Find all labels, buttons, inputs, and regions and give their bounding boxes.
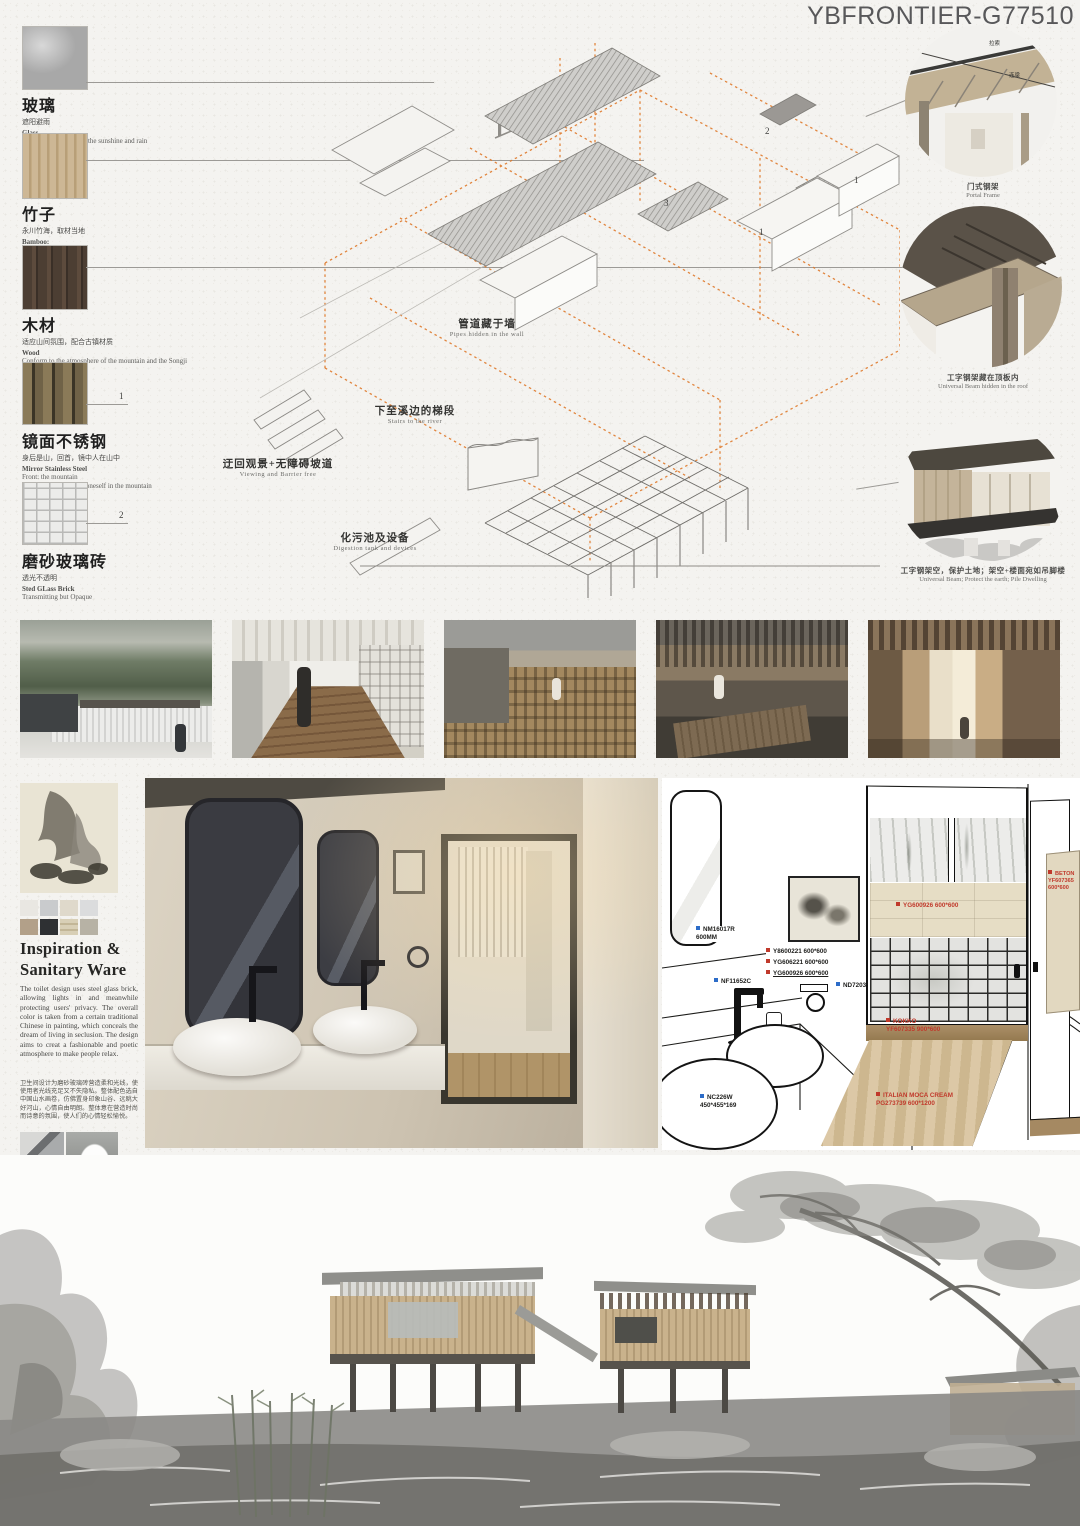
label-floor-stone: ITALIAN MOCA CREAM PG273739 600*1200 bbox=[876, 1092, 986, 1108]
roof-edge bbox=[80, 700, 200, 708]
person-figure bbox=[552, 678, 561, 700]
stilt bbox=[430, 1364, 436, 1412]
exploded-axonometric-diagram bbox=[240, 18, 900, 598]
swatch-charcoal bbox=[40, 919, 58, 935]
pergola-slats bbox=[656, 620, 848, 667]
window-glass bbox=[388, 1302, 458, 1338]
stilt bbox=[618, 1369, 624, 1413]
stilt bbox=[722, 1369, 728, 1413]
ink-mountain-art bbox=[20, 783, 118, 893]
swatch-beige bbox=[60, 900, 78, 916]
shower-door-handle bbox=[1014, 964, 1020, 978]
detail-caption-beam-in-roof: 工字钢架藏在顶板内 Universal Beam hidden in the r… bbox=[868, 372, 1080, 390]
label-beton: BETON YF607365 600*600 bbox=[1048, 870, 1074, 892]
material-swatch-mirror-steel bbox=[22, 362, 88, 425]
blue-marker-icon bbox=[696, 926, 700, 930]
annotation-cable: 拉索 bbox=[989, 39, 1000, 47]
dark-volume bbox=[444, 648, 509, 724]
person-figure bbox=[960, 717, 969, 739]
axon-label-pipes: 管道藏于墙 Pipes hidden in the wall bbox=[397, 316, 577, 338]
blue-marker-icon bbox=[836, 982, 840, 986]
blue-marker-icon bbox=[700, 1094, 704, 1098]
clerestory-band bbox=[340, 1282, 535, 1296]
swatch-lightgray bbox=[80, 900, 98, 916]
detail-caption-portal-frame: 门式钢架 Portal Frame bbox=[868, 181, 1080, 199]
inspiration-body-chinese: 卫生间设计为磨砂玻璃砖营造柔和光线，使使用者光线充足又不失隐私。整体配色选自中国… bbox=[20, 1080, 138, 1121]
tp-roll bbox=[806, 993, 825, 1012]
floor-shadow bbox=[868, 739, 1060, 758]
detail-image-pile-dwelling bbox=[898, 420, 1064, 562]
axon-marker-1b: 1 bbox=[854, 175, 859, 185]
shower-mosaic-tiles bbox=[870, 938, 1026, 1022]
red-marker-icon bbox=[896, 902, 900, 906]
material-swatch-wood bbox=[22, 245, 88, 310]
swatch-tan bbox=[20, 919, 38, 935]
color-swatch-row-2 bbox=[20, 919, 98, 935]
shower-beige-band bbox=[870, 883, 1026, 937]
portal-frame-drawing bbox=[905, 25, 1057, 177]
axon-marker-1a: 1 bbox=[759, 227, 764, 237]
tp-bracket bbox=[800, 984, 828, 992]
bathroom-interior-render bbox=[145, 778, 658, 1148]
riverside-elevation-render bbox=[0, 1155, 1080, 1526]
material-swatch-glass bbox=[22, 26, 88, 90]
door-handle bbox=[1033, 962, 1038, 972]
axon-label-stairs: 下至溪边的梯段 Stairs to the river bbox=[325, 403, 505, 425]
label-tp-code: ND7203 bbox=[836, 982, 866, 990]
material-swatch-bamboo bbox=[22, 133, 88, 199]
leader-line-brick bbox=[86, 523, 128, 524]
swatch-cream bbox=[20, 900, 38, 916]
beam-in-roof-drawing bbox=[900, 206, 1062, 368]
dark-window bbox=[615, 1317, 657, 1343]
stilt bbox=[350, 1364, 356, 1412]
person-figure bbox=[175, 724, 186, 752]
swatch-taupe bbox=[80, 919, 98, 935]
stilt bbox=[475, 1364, 481, 1412]
red-marker-icon bbox=[1048, 870, 1052, 874]
material-marker-2: 2 bbox=[119, 510, 124, 520]
annotation-beam: 连梁 bbox=[1009, 71, 1020, 79]
red-marker-icon bbox=[766, 948, 770, 952]
ink-landscape bbox=[0, 1155, 1080, 1526]
shower-jamb-left bbox=[866, 786, 868, 1036]
floor-band bbox=[330, 1354, 535, 1364]
blue-marker-icon bbox=[714, 978, 718, 982]
render-wood-corridor bbox=[868, 620, 1060, 758]
axon-label-viewing: 迂回观景+无障碍坡道 Viewing and Barrier free bbox=[188, 456, 368, 478]
shower-jamb-right bbox=[1026, 788, 1028, 1036]
render-aerial-pergola bbox=[444, 620, 636, 758]
tp-holder bbox=[798, 984, 828, 1014]
drawn-faucet-tip bbox=[757, 995, 763, 1008]
pile-dwelling-drawing bbox=[898, 420, 1064, 562]
bathroom-technical-drawing: NM16017R 600MM Y8600221 600*600 YG606221… bbox=[662, 778, 1080, 1150]
leader-line-mirror bbox=[86, 404, 128, 405]
pergola-band bbox=[600, 1293, 750, 1309]
material-swatch-glass-brick bbox=[22, 482, 88, 545]
detail-caption-pile-dwelling: 工字钢架空，保护土地；架空+楼面宛如吊脚楼 Universal Beam; Pr… bbox=[868, 565, 1080, 583]
ceiling-slats bbox=[868, 620, 1060, 650]
swatch-gray bbox=[40, 900, 58, 916]
red-marker-icon bbox=[886, 1018, 890, 1022]
label-threshold: KOKKO YF607335 900*600 bbox=[886, 1018, 940, 1034]
presentation-board: YBFRONTIER-G77510 玻璃 遮阳避雨 Glass To prote… bbox=[0, 0, 1080, 1526]
mirror-outline bbox=[670, 790, 722, 946]
stilt bbox=[670, 1369, 676, 1413]
axon-marker-3: 3 bbox=[664, 198, 669, 208]
glass-mullion bbox=[948, 818, 955, 882]
stilt bbox=[515, 1364, 521, 1412]
render-exterior-valley bbox=[20, 620, 212, 758]
person-figure bbox=[297, 667, 311, 727]
ink-painting-reference bbox=[20, 783, 118, 893]
drawn-faucet-spout bbox=[734, 988, 764, 995]
detail-image-portal-frame: 拉索 连梁 bbox=[905, 25, 1057, 177]
label-basin-code: NC226W 450*455*169 bbox=[700, 1094, 770, 1110]
wall-painting bbox=[788, 876, 860, 942]
inspiration-body-english: The toilet design uses steel glass brick… bbox=[20, 984, 138, 1058]
render-corridor-glassbrick bbox=[232, 620, 424, 758]
label-tile-codes: Y8600221 600*600 YG606221 600*600 YG6009… bbox=[766, 946, 828, 979]
inspiration-heading: Inspiration & Sanitary Ware bbox=[20, 938, 150, 980]
label-faucet-code: NF11652C bbox=[714, 978, 751, 986]
axon-label-digestion: 化污池及设备 Digestion tank and devices bbox=[285, 530, 465, 552]
left-stilt-building bbox=[330, 1270, 535, 1415]
axon-marker-2: 2 bbox=[765, 126, 770, 136]
detail-image-beam-in-roof bbox=[900, 206, 1062, 368]
material-marker-1: 1 bbox=[119, 391, 124, 401]
dark-building-block bbox=[20, 694, 78, 732]
label-shower-tile: YG600926 600*600 bbox=[896, 902, 958, 910]
sunlight-overlay bbox=[145, 778, 658, 1148]
person-figure bbox=[714, 675, 724, 699]
right-baseboard bbox=[1030, 1117, 1080, 1137]
stilt bbox=[390, 1364, 396, 1412]
red-marker-icon bbox=[766, 970, 770, 974]
color-swatch-row-1 bbox=[20, 900, 98, 916]
material-label-glass-brick: 磨砂玻璃砖 透光不透明 Sted GLass Brick Transmittin… bbox=[22, 548, 197, 602]
right-stilt-building bbox=[600, 1283, 750, 1413]
red-marker-icon bbox=[876, 1092, 880, 1096]
floor-band bbox=[600, 1361, 750, 1369]
shower-glass-bamboo bbox=[870, 818, 1026, 882]
render-walkway-pergola bbox=[656, 620, 848, 758]
red-marker-icon bbox=[766, 959, 770, 963]
swatch-tile-strip bbox=[60, 919, 78, 935]
label-mirror-code: NM16017R 600MM bbox=[696, 926, 758, 942]
